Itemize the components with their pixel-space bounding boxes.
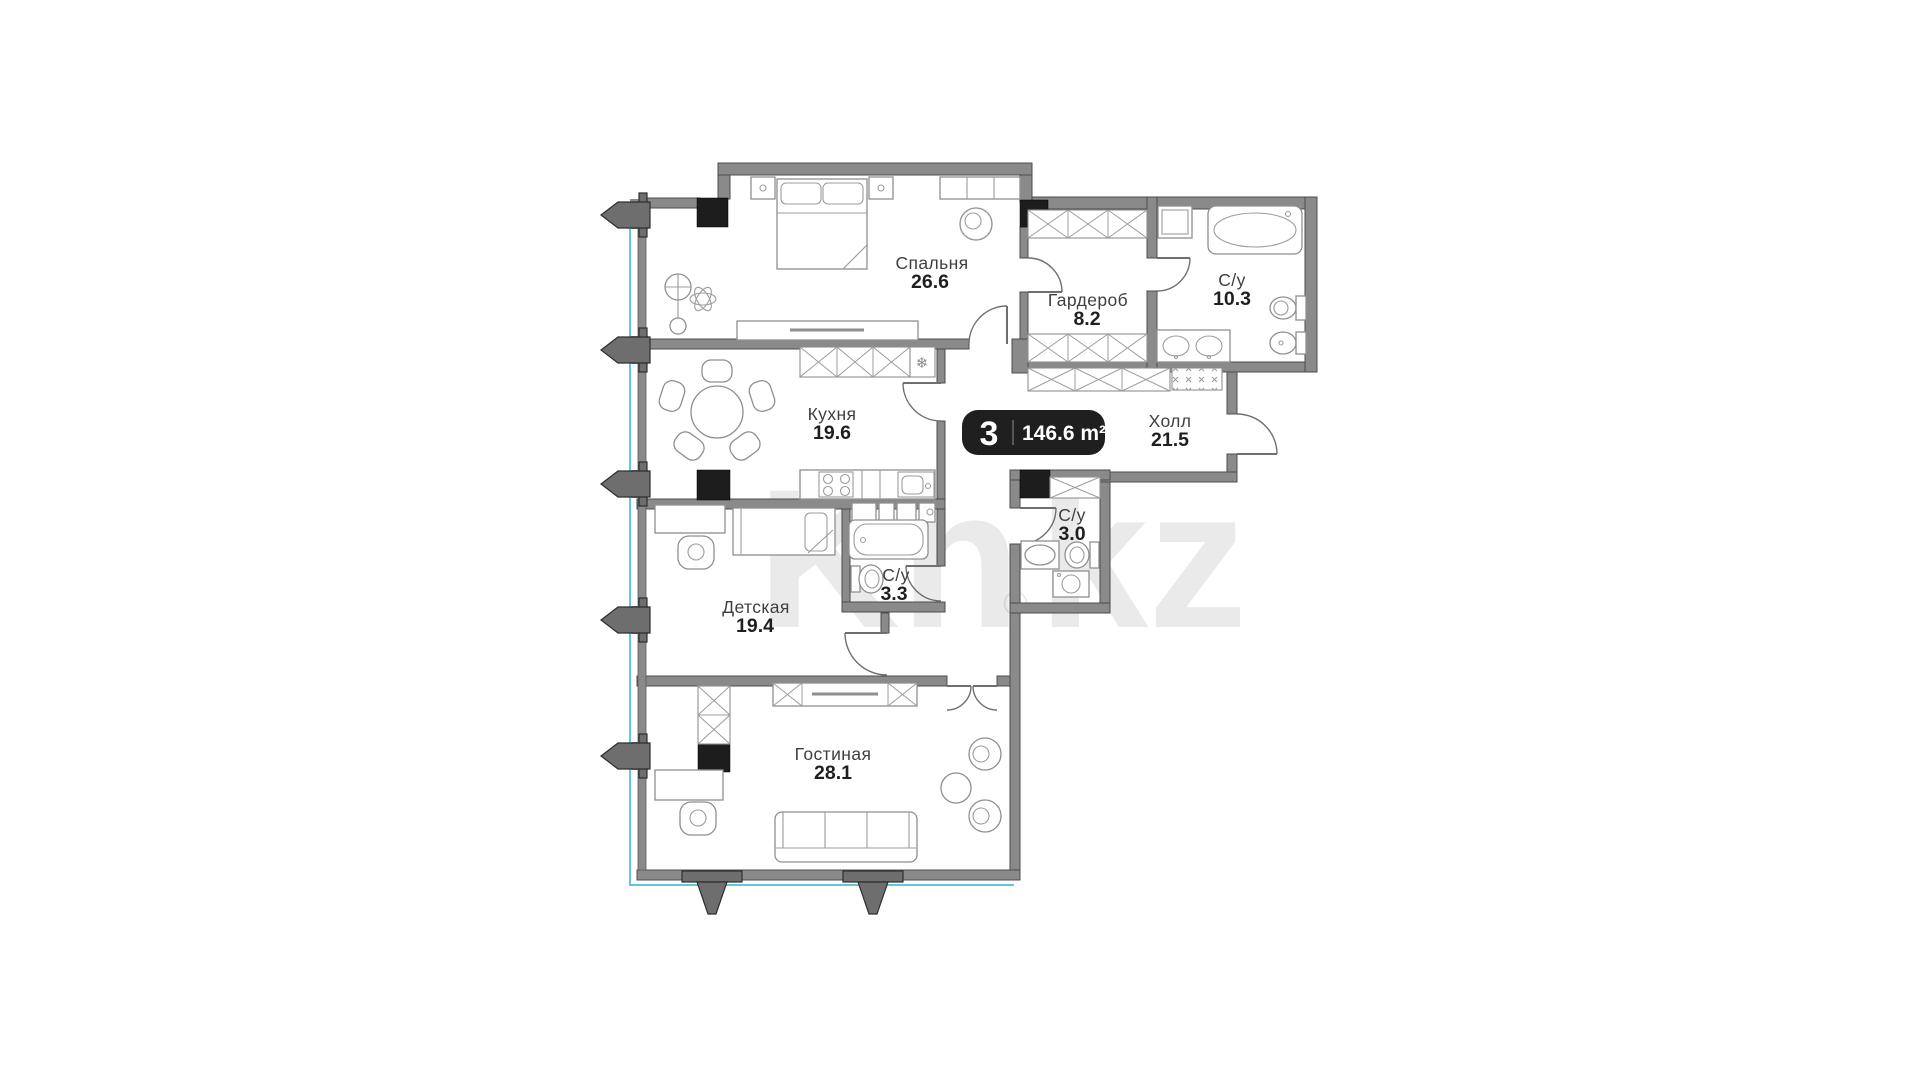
room-name-bathroom-large: С/у (1218, 270, 1245, 290)
room-area-hall: 21.5 (1151, 429, 1189, 451)
wall-bedroom-top (718, 163, 1032, 175)
wardrobe-cabinet-bottom (1028, 334, 1147, 362)
wall-living-right (1010, 613, 1020, 880)
wall-bath30-left-a (1010, 480, 1020, 508)
column-kitchen (697, 470, 730, 500)
room-name-living: Гостиная (795, 744, 872, 764)
toilet-bath103 (1270, 296, 1306, 320)
balcony-arrow-bottom-2 (843, 871, 903, 914)
door-wardrobe (1028, 258, 1062, 292)
living-cabinet-column (698, 686, 730, 744)
balcony-arrow-left-3 (601, 462, 650, 506)
wall-hall-bottom (1100, 472, 1237, 482)
total-area: 146.6 m² (1022, 422, 1106, 445)
area-badge: 3 146.6 m² (962, 410, 1106, 455)
column-bedroom-left (697, 198, 728, 227)
bedroom-desk (940, 177, 1020, 199)
wall-kitchen-right-b (937, 421, 945, 566)
living-chair (680, 802, 716, 835)
wall-bedroom-topleft-stub (718, 175, 730, 199)
wall-outer-right (1305, 197, 1317, 372)
balcony-arrow-bottom-1 (682, 871, 742, 914)
bath-cabinet (1158, 206, 1192, 238)
balcony-arrow-left-4 (601, 598, 650, 642)
door-living-double (947, 686, 997, 710)
balcony-arrow-left-5 (601, 734, 650, 778)
wall-bath30-bottom (1010, 603, 1110, 613)
kitchen-lower-cabinets (852, 503, 935, 522)
window-wall-2 (638, 363, 646, 471)
wall-bedroom-right-b (1020, 292, 1028, 339)
room-area-bathroom-small: 3.0 (1058, 523, 1085, 545)
room-area-bedroom: 26.6 (911, 271, 949, 293)
double-vanity (1157, 330, 1230, 362)
wardrobe-cabinet-top (1028, 210, 1147, 238)
window-wall-3 (638, 497, 646, 607)
wall-bath33-left (842, 509, 850, 602)
washing-machine (1053, 571, 1089, 597)
room-name-wardrobe: Гардероб (1048, 290, 1128, 310)
wall-bath103-left-b (1147, 291, 1157, 372)
coffee-table (941, 773, 971, 803)
toilet-bath30 (1065, 542, 1099, 568)
wall-kitchen-right-a (937, 349, 945, 383)
plant (690, 285, 716, 314)
room-name-children: Детская (722, 597, 790, 617)
window-wall-4 (638, 633, 646, 743)
room-area-kitchen: 19.6 (813, 422, 851, 444)
room-name-hall: Холл (1149, 411, 1192, 431)
wall-hall-right-a (1227, 372, 1237, 414)
floor-plan: Kn ® kz (0, 0, 1919, 1080)
kitchen-counter (800, 470, 935, 499)
wall-top-step (1020, 175, 1032, 202)
room-name-bedroom: Спальня (895, 253, 968, 273)
wall-bedroom-right-a (1020, 227, 1028, 258)
children-desk (655, 505, 725, 533)
toilet-bath33 (851, 565, 883, 593)
rooms-count: 3 (980, 415, 999, 453)
room-area-living: 28.1 (814, 762, 852, 784)
children-bed (733, 508, 835, 555)
nightstand-left (751, 177, 775, 199)
bath30-sink (1025, 545, 1055, 565)
window-wall-5 (638, 769, 646, 870)
floor-plan-page: Kn ® kz (0, 0, 1919, 1080)
room-name-bathroom-child: С/у (882, 565, 909, 585)
column-bath30 (1020, 470, 1050, 498)
bedroom-desk-chair (960, 208, 992, 240)
bidet (1270, 332, 1306, 354)
wall-bath103-left-a (1147, 197, 1157, 258)
floor-lamp (665, 274, 691, 334)
window-wall-1 (638, 228, 646, 338)
door-bathroom-large (1157, 258, 1190, 291)
armchair-1 (969, 738, 1001, 770)
door-kitchen (903, 383, 941, 421)
door-bedroom (969, 306, 1007, 344)
dining-table (691, 386, 743, 438)
armchair-2 (969, 800, 1001, 832)
room-name-bathroom-small: С/у (1058, 505, 1085, 525)
column-living (698, 744, 730, 772)
balcony-arrow-left-2 (601, 328, 650, 372)
fridge-snowflake-icon: ❄ (916, 355, 929, 372)
wall-children-door-stub (881, 613, 889, 633)
kitchen-cabinet-strip: ❄ (800, 347, 935, 377)
living-tv-console (773, 683, 917, 706)
room-area-wardrobe: 8.2 (1073, 308, 1100, 330)
wall-bath30-right (1100, 482, 1110, 613)
sofa (775, 812, 917, 862)
children-chair (678, 536, 714, 569)
room-area-children: 19.4 (736, 615, 774, 637)
wall-balcony-top (645, 198, 700, 208)
bath30-closet (1050, 477, 1100, 498)
bathtub-large (1208, 206, 1302, 254)
living-desk (655, 770, 723, 800)
room-name-kitchen: Кухня (808, 404, 857, 424)
hall-cabinet-strip (1028, 368, 1222, 391)
bed (777, 179, 867, 269)
wall-bedroom-bottom-stub (1012, 339, 1028, 373)
nightstand-right (869, 177, 893, 199)
room-area-bathroom-large: 10.3 (1213, 288, 1251, 310)
room-area-bathroom-child: 3.3 (880, 583, 907, 605)
balcony-arrow-left-1 (601, 193, 650, 237)
